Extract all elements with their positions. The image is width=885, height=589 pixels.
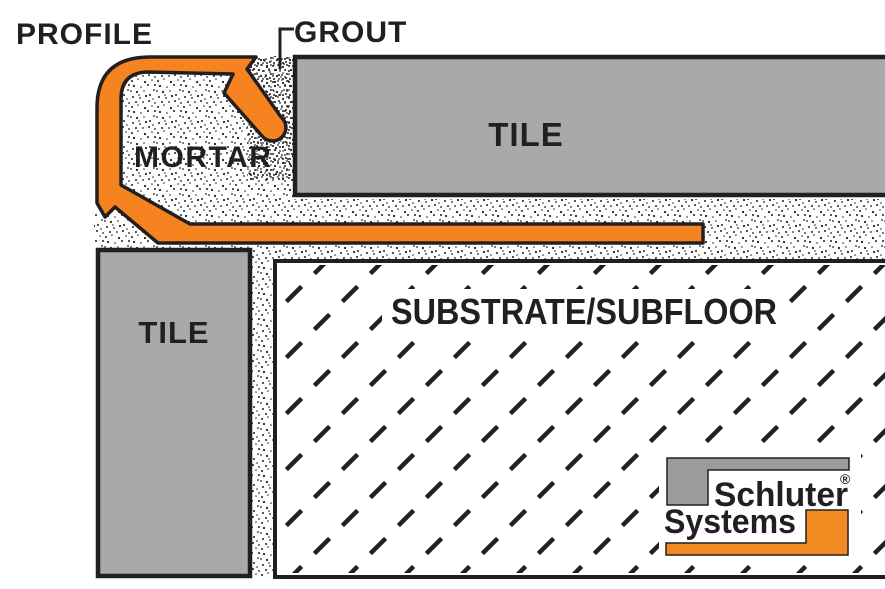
tile-top-group: TILE <box>295 57 885 195</box>
logo-registered-mark: ® <box>840 471 851 487</box>
mortar-label: MORTAR <box>134 141 272 174</box>
substrate-label: SUBSTRATE/SUBFLOOR <box>391 291 777 332</box>
tile-left <box>98 250 250 576</box>
tile-left-group: TILE <box>98 250 250 576</box>
tile-top-label: TILE <box>488 116 564 153</box>
profile-label: PROFILE <box>16 18 153 51</box>
tile-top <box>295 57 885 195</box>
grout-label: GROUT <box>294 16 407 49</box>
tile-left-label: TILE <box>138 315 209 350</box>
diagram-svg: SUBSTRATE/SUBFLOOR Schluter ® Systems TI… <box>0 0 885 589</box>
installation-diagram: SUBSTRATE/SUBFLOOR Schluter ® Systems TI… <box>0 0 885 589</box>
logo-word-systems: Systems <box>664 503 796 541</box>
schluter-systems-logo: Schluter ® Systems <box>659 448 861 562</box>
